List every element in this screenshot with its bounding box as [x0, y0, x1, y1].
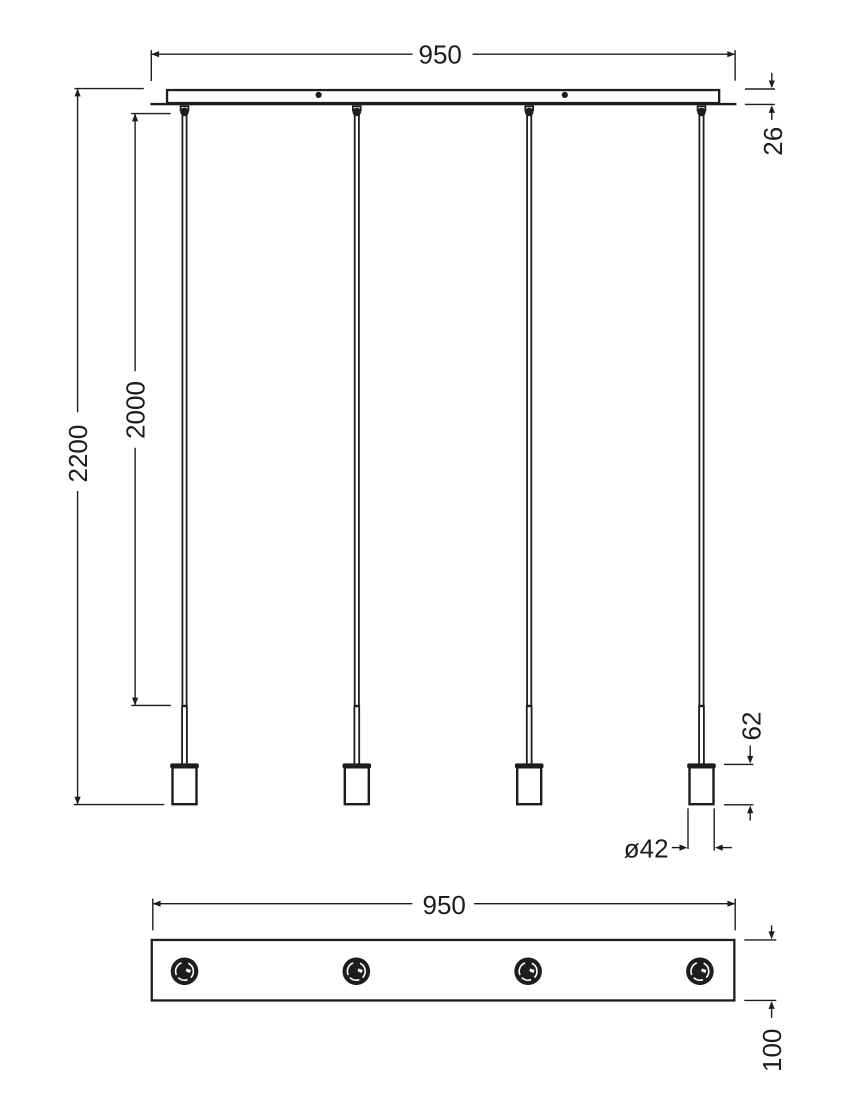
svg-text:26: 26 — [758, 127, 788, 156]
svg-text:950: 950 — [423, 890, 466, 920]
svg-text:ø42: ø42 — [624, 833, 669, 863]
svg-text:2000: 2000 — [121, 381, 151, 439]
svg-text:950: 950 — [419, 40, 462, 70]
svg-text:2200: 2200 — [63, 425, 93, 483]
svg-text:100: 100 — [757, 1029, 787, 1072]
svg-text:62: 62 — [736, 712, 766, 741]
